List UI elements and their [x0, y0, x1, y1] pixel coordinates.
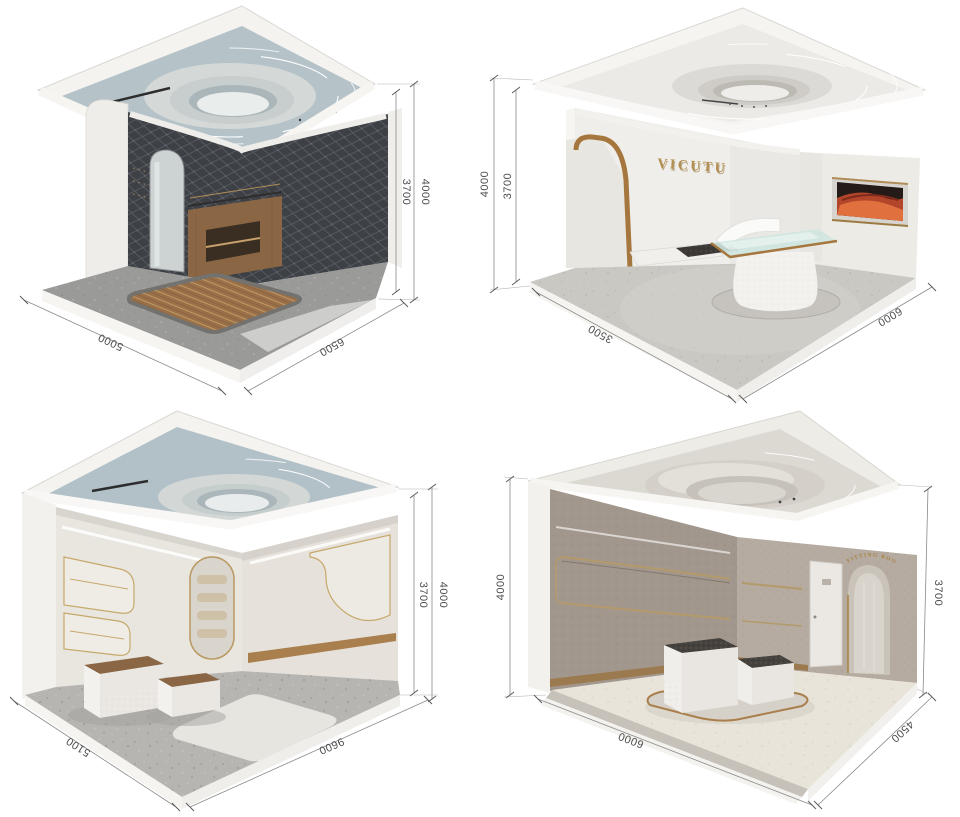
render-room-top-left: 3700 4000 5000 6500: [20, 6, 431, 395]
door-handle: [814, 616, 817, 619]
dimension-label-floor-right: 4500: [888, 718, 916, 745]
right-shell-edge: [388, 108, 402, 268]
axonometric-renders-sheet: 3700 4000 5000 6500: [0, 0, 960, 817]
render-room-top-right: VICUTU VICUTU: [479, 8, 936, 403]
door-sign: [822, 579, 831, 585]
render-room-bottom-right: FITTING ROOM 4000: [477, 403, 944, 809]
dimension-label-floor-left: 5000: [96, 331, 125, 353]
dimension-label-height-inner: 3700: [400, 179, 412, 205]
dimension-label-height-outer: 4000: [419, 179, 431, 205]
door: [810, 561, 842, 667]
tv-niche: [832, 178, 908, 226]
dimension-label-height-inner: 3700: [417, 582, 429, 608]
dimension-label-height-outer: 4000: [495, 574, 507, 600]
white-shell-band: [22, 493, 56, 699]
white-shell-band: [528, 481, 550, 693]
dimension-label-height-outer: 4000: [479, 171, 491, 197]
presentation-board: 3700 4000 5000 6500: [0, 0, 960, 817]
oval-shelf-niche: [190, 557, 234, 659]
render-room-bottom-left: 3700 4000 5100 9600: [10, 411, 449, 811]
dimension-label-height-outer: 4000: [437, 582, 449, 608]
dimension-label-height-inner: 3700: [502, 173, 514, 199]
floor: [42, 262, 388, 383]
dimension-label-height-inner: 3700: [932, 580, 944, 606]
